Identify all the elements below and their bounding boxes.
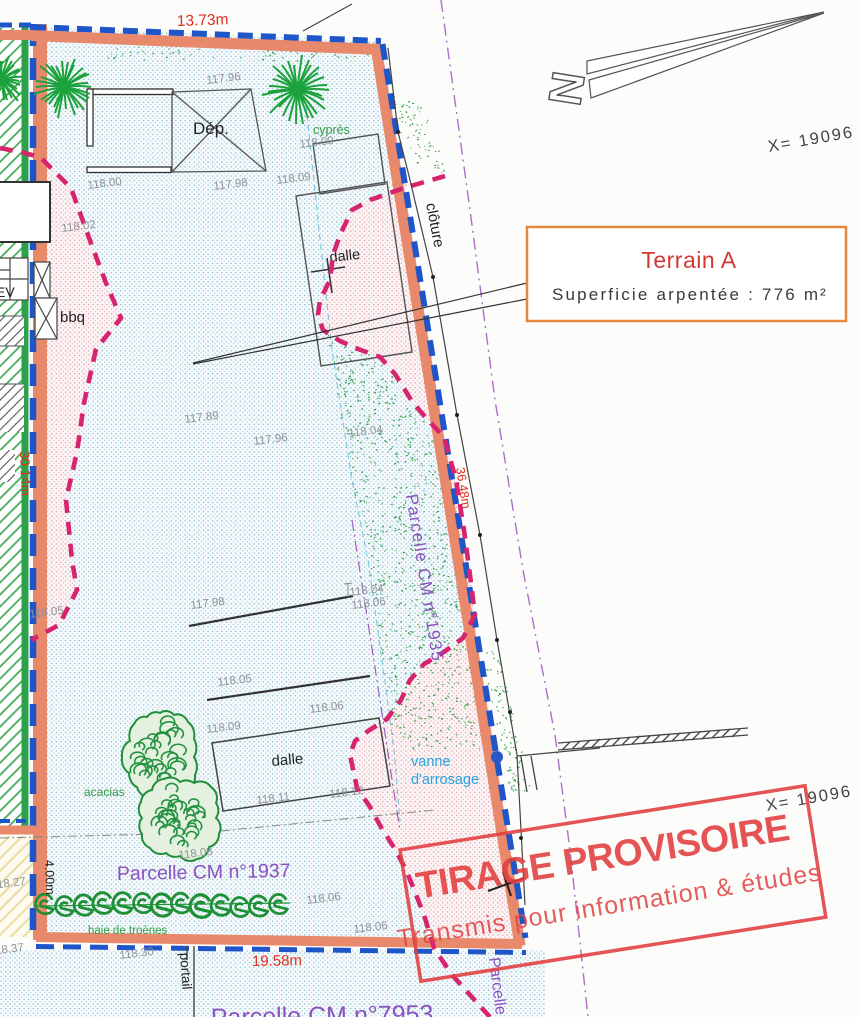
svg-text:vanne: vanne [411, 754, 451, 770]
svg-text:Parcelle CM n°7953: Parcelle CM n°7953 [211, 1000, 434, 1017]
svg-text:Superficie arpentée : 776 m²: Superficie arpentée : 776 m² [552, 285, 828, 304]
svg-text:dalle: dalle [271, 750, 304, 770]
svg-text:EV: EV [0, 284, 15, 300]
svg-text:Parcelle CM n°1937: Parcelle CM n°1937 [117, 860, 291, 885]
svg-text:Dép.: Dép. [193, 119, 229, 138]
svg-text:Terrain A: Terrain A [641, 247, 736, 273]
svg-text:bbq: bbq [60, 309, 85, 326]
svg-text:13.73m: 13.73m [177, 11, 229, 30]
svg-text:portail: portail [177, 952, 195, 990]
svg-text:haie de troènes: haie de troènes [88, 925, 168, 937]
svg-text:4.00m: 4.00m [42, 860, 57, 895]
svg-text:30.14m: 30.14m [17, 451, 34, 497]
svg-text:acacias: acacias [84, 785, 125, 799]
svg-text:19.58m: 19.58m [252, 952, 302, 970]
svg-text:d'arrosage: d'arrosage [411, 772, 479, 788]
svg-text:cyprès: cyprès [313, 123, 350, 137]
